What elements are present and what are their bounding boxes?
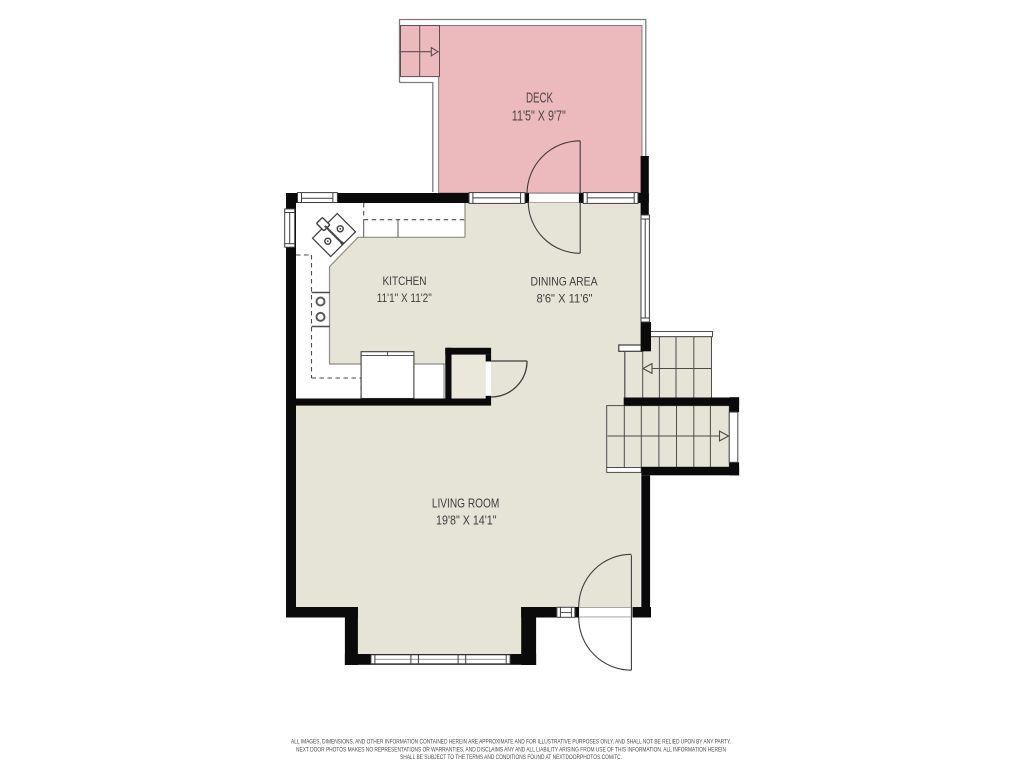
svg-text:11'1" X 11'2": 11'1" X 11'2" [377,291,432,305]
svg-text:19'8" X 14'1": 19'8" X 14'1" [436,513,497,528]
svg-text:11'5" X 9'7": 11'5" X 9'7" [512,108,566,125]
svg-text:LIVING ROOM: LIVING ROOM [432,496,500,511]
svg-text:DECK: DECK [526,90,553,107]
svg-text:DINING AREA: DINING AREA [531,275,599,289]
svg-text:SHALL BE SUBJECT TO THE TERMS: SHALL BE SUBJECT TO THE TERMS AND CONDIT… [400,754,622,761]
svg-text:KITCHEN: KITCHEN [383,274,427,288]
svg-text:ALL IMAGES, DIMENSIONS, AND OT: ALL IMAGES, DIMENSIONS, AND OTHER INFORM… [291,738,731,745]
svg-text:8'6" X 11'6": 8'6" X 11'6" [537,291,593,305]
svg-text:NEXT DOOR PHOTOS MAKES NO REPR: NEXT DOOR PHOTOS MAKES NO REPRESENTATION… [296,746,726,753]
